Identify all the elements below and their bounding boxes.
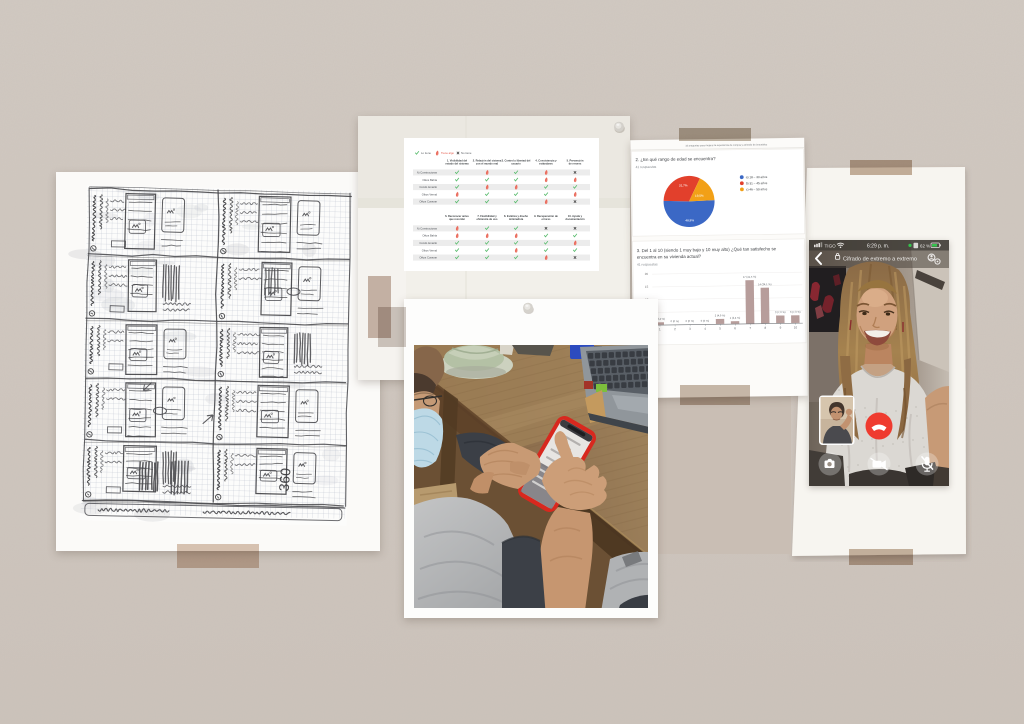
svg-text:3 (7,3 %): 3 (7,3 %) — [790, 310, 801, 314]
svg-text:TIGO: TIGO — [825, 243, 837, 248]
svg-text:con el mundo real: con el mundo real — [476, 162, 498, 166]
svg-text:encuentra en su vivienda actua: encuentra en su vivienda actual? — [637, 254, 702, 260]
svg-text:Cifrado de extremo a extremo: Cifrado de extremo a extremo — [843, 257, 917, 263]
svg-text:62 %: 62 % — [920, 243, 930, 248]
svg-text:Oikos Vernal: Oikos Vernal — [422, 248, 438, 252]
svg-text:6:29 p. m.: 6:29 p. m. — [867, 244, 889, 250]
svg-text:360: 360 — [276, 467, 294, 492]
svg-text:15: 15 — [645, 285, 649, 289]
svg-text:31,7%: 31,7% — [679, 183, 688, 187]
svg-text:Oikos Vernal: Oikos Vernal — [422, 192, 438, 196]
svg-text:48,8%: 48,8% — [685, 218, 694, 222]
svg-text:Oikos Cusezar: Oikos Cusezar — [419, 256, 437, 260]
svg-text:0 (0 %): 0 (0 %) — [686, 319, 695, 323]
svg-text:b) 31 – 45 años: b) 31 – 45 años — [746, 181, 768, 185]
svg-text:10 preguntas para mejorar la e: 10 preguntas para mejorar la experiencia… — [685, 143, 768, 147]
svg-text:minimalista: minimalista — [509, 217, 524, 221]
svg-text:10: 10 — [794, 325, 798, 329]
svg-text:de errores: de errores — [569, 162, 582, 166]
svg-text:a) 18 – 30 años: a) 18 – 30 años — [746, 175, 768, 179]
svg-text:que recordar: que recordar — [449, 217, 465, 221]
svg-text:Tiene algo: Tiene algo — [441, 151, 454, 155]
svg-text:3 (7,3 %): 3 (7,3 %) — [775, 310, 786, 314]
svg-text:41 respuestas: 41 respuestas — [636, 165, 657, 169]
svg-text:Lo tiene: Lo tiene — [421, 151, 431, 155]
svg-text:A) Constructoras: A) Constructoras — [417, 171, 438, 175]
svg-text:17 (41,5 %): 17 (41,5 %) — [743, 275, 757, 279]
svg-text:1 (2,4 %): 1 (2,4 %) — [730, 316, 741, 320]
svg-text:19,5%: 19,5% — [695, 194, 704, 198]
svg-text:Oikos Bahía: Oikos Bahía — [422, 178, 437, 182]
svg-text:Condo Amarilo: Condo Amarilo — [419, 241, 437, 245]
svg-text:usuario: usuario — [511, 162, 521, 166]
svg-text:20: 20 — [645, 272, 649, 276]
svg-text:estado del sistema: estado del sistema — [445, 162, 469, 166]
svg-text:errores: errores — [542, 217, 551, 221]
svg-text:Oikos Bahía: Oikos Bahía — [422, 234, 437, 238]
svg-text:eficiencia de uso: eficiencia de uso — [477, 217, 498, 221]
svg-text:2 (4,9 %): 2 (4,9 %) — [715, 313, 726, 317]
svg-text:Oikos Cusezar: Oikos Cusezar — [419, 200, 437, 204]
svg-text:14 (34,1 %): 14 (34,1 %) — [758, 282, 772, 286]
svg-text:0 (0 %): 0 (0 %) — [671, 319, 680, 323]
svg-text:No tiene: No tiene — [461, 151, 472, 155]
svg-text:0 (0 %): 0 (0 %) — [701, 319, 710, 323]
svg-text:A) Constructoras: A) Constructoras — [417, 226, 438, 230]
svg-text:documentación: documentación — [565, 217, 585, 221]
svg-text:Condo Amarilo: Condo Amarilo — [419, 185, 437, 189]
svg-text:c) 46 – 59 años: c) 46 – 59 años — [746, 187, 768, 191]
svg-text:41 respuestas: 41 respuestas — [637, 262, 658, 266]
svg-text:estándares: estándares — [539, 162, 553, 166]
